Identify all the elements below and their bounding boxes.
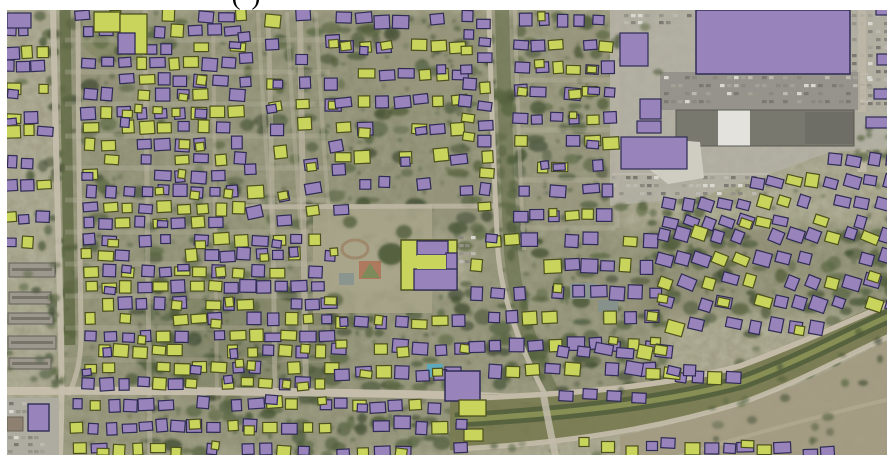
svg-text:( ): ( )	[232, 0, 261, 10]
